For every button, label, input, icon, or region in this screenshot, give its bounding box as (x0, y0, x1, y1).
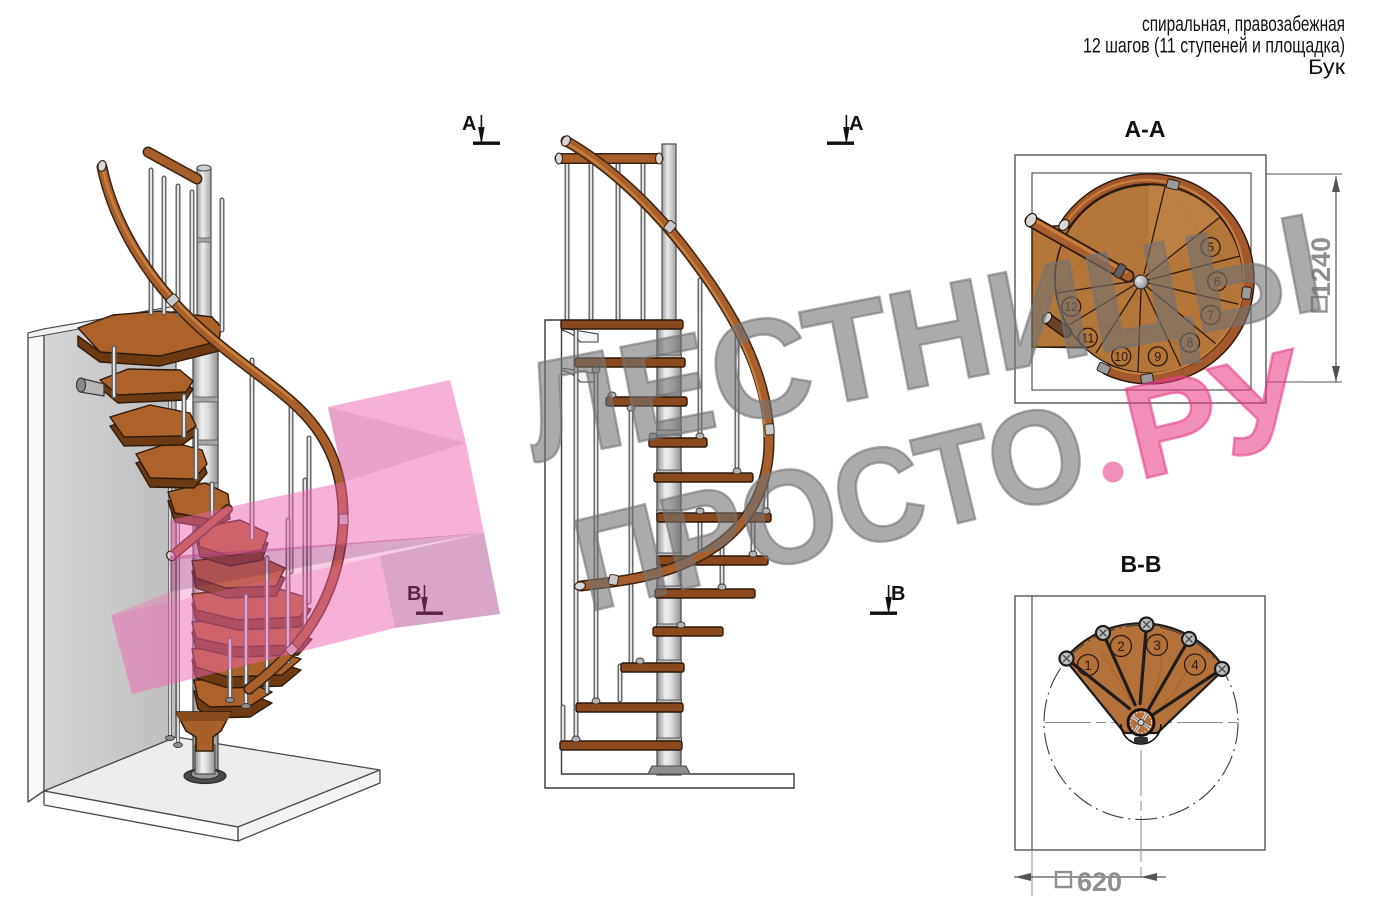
svg-text:B-B: B-B (1121, 551, 1162, 577)
svg-text:A: A (849, 113, 863, 135)
svg-text:4: 4 (1191, 657, 1199, 672)
svg-text:A-A: A-A (1125, 116, 1166, 142)
svg-text:B: B (891, 583, 905, 605)
svg-text:1: 1 (1084, 658, 1092, 673)
svg-text:2: 2 (1117, 639, 1125, 654)
svg-text:спиральная, правозабежная: спиральная, правозабежная (1142, 13, 1345, 36)
svg-text:3: 3 (1153, 638, 1161, 653)
svg-text:12 шагов (11 ступеней и площад: 12 шагов (11 ступеней и площадка) (1083, 35, 1345, 58)
svg-text:A: A (462, 113, 476, 135)
svg-text:620: 620 (1077, 867, 1122, 897)
svg-text:Бук: Бук (1308, 56, 1346, 79)
